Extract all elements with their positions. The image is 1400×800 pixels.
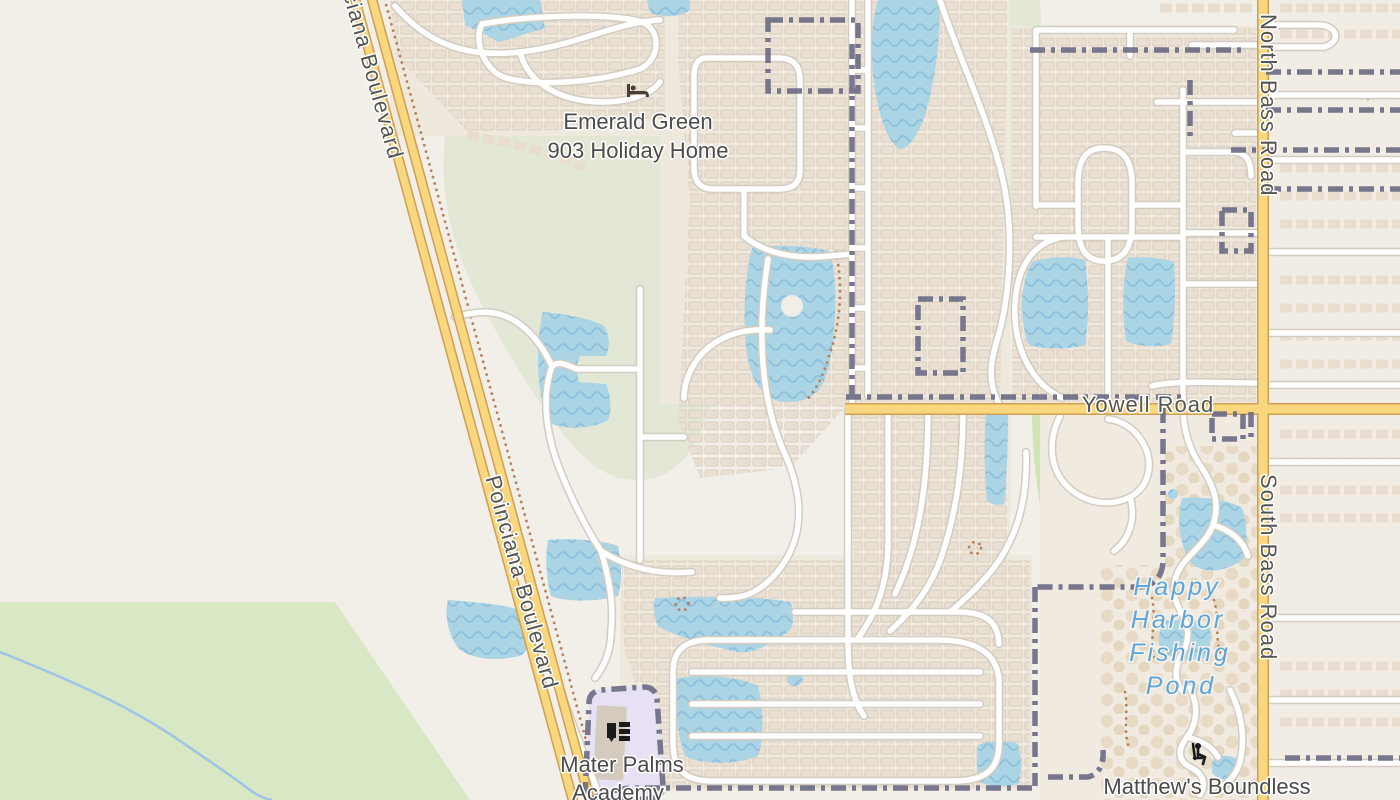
water-label-harbor: Harbor (1131, 606, 1225, 634)
road-label-yowell: Yowell Road (1082, 392, 1215, 417)
water-label-pond: Pond (1146, 672, 1216, 700)
water-label-fishing: Fishing (1129, 639, 1231, 667)
poi-label-mater-palms-line2: Academy (572, 780, 664, 800)
poi-label-matthews-boundless: Matthew's Boundless (1103, 774, 1310, 799)
road-label-north-bass: North Bass Road (1256, 14, 1281, 197)
poi-label-emerald-green-line1: Emerald Green (563, 109, 712, 134)
pond-island (781, 295, 803, 317)
map-canvas[interactable]: Emerald Green 903 Holiday Home Poinciana… (0, 0, 1400, 800)
water-label-happy: Happy (1133, 573, 1220, 601)
road-label-south-bass: South Bass Road (1256, 474, 1281, 660)
poi-label-mater-palms-line1: Mater Palms (560, 752, 683, 777)
poi-label-emerald-green-line2: 903 Holiday Home (548, 138, 729, 163)
